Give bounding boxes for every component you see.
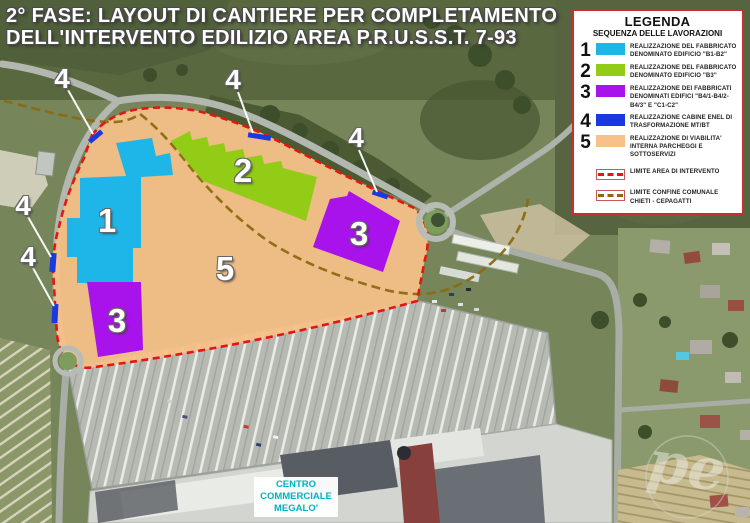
title-line-2: DELL'INTERVENTO EDILIZIO AREA P.R.U.S.S.…	[6, 27, 557, 49]
legend-item-label: REALIZZAZIONE DEL FABBRICATO DENOMINATO …	[630, 42, 737, 59]
mall-label: CENTRO COMMERCIALE MEGALO'	[254, 477, 338, 517]
legend-red-dash-swatch	[596, 169, 625, 180]
legend-item-4: 4 REALIZZAZIONE CABINE ENEL DI TRASFORMA…	[578, 113, 737, 131]
cabin-marker-4: 4	[15, 190, 31, 222]
roundabout-east	[419, 205, 453, 239]
legend-line-intervento: LIMITE AREA DI INTERVENTO	[578, 167, 737, 180]
legend-item-number: 1	[578, 42, 593, 60]
legend-item-label: REALIZZAZIONE DEL FABBRICATO DENOMINATO …	[630, 63, 737, 80]
legend-swatch-viabilita	[596, 135, 625, 147]
legend-item-number: 3	[578, 84, 593, 102]
cabin-marker-3: 4	[348, 122, 364, 154]
legend-swatch-b4-c1-c2	[596, 85, 625, 97]
terraced-slope	[0, 338, 52, 523]
cabin-marker-5: 4	[20, 241, 36, 273]
zone-label-2: 2	[234, 152, 252, 190]
site-plan-screenshot: 2° FASE: LAYOUT DI CANTIERE PER COMPLETA…	[0, 0, 750, 523]
legend-item-label: REALIZZAZIONE DEI FABBRICATI DENOMINATI …	[630, 84, 737, 110]
legend-swatch-b1-b2	[596, 43, 625, 55]
legend-item-label: REALIZZAZIONE CABINE ENEL DI TRASFORMAZI…	[630, 113, 737, 130]
legend-title: LEGENDA	[578, 14, 737, 29]
legend-item-number: 4	[578, 113, 593, 131]
legend-line-label: LIMITE AREA DI INTERVENTO	[630, 167, 737, 176]
legend-item-number: 2	[578, 63, 593, 81]
legend-item-label: REALIZZAZIONE DI VIABILITA' INTERNA PARC…	[630, 134, 737, 160]
legend-line-label: LIMITE CONFINE COMUNALE CHIETI - CEPAGAT…	[630, 188, 737, 205]
zone-label-3-east: 3	[350, 215, 368, 253]
legend-panel: LEGENDA SEQUENZA DELLE LAVORAZIONI 1 REA…	[572, 9, 744, 215]
legend-item-number: 5	[578, 134, 593, 152]
title-line-1: 2° FASE: LAYOUT DI CANTIERE PER COMPLETA…	[6, 5, 557, 27]
legend-item-3: 3 REALIZZAZIONE DEI FABBRICATI DENOMINAT…	[578, 84, 737, 110]
legend-subtitle: SEQUENZA DELLE LAVORAZIONI	[578, 29, 737, 38]
zone-label-1: 1	[98, 202, 116, 240]
cabin-marker-2: 4	[225, 64, 241, 96]
enel-cabin-5	[51, 304, 58, 323]
legend-item-2: 2 REALIZZAZIONE DEL FABBRICATO DENOMINAT…	[578, 63, 737, 81]
cabin-marker-1: 4	[54, 63, 70, 95]
legend-item-1: 1 REALIZZAZIONE DEL FABBRICATO DENOMINAT…	[578, 42, 737, 60]
zone-label-3-west: 3	[108, 302, 126, 340]
legend-swatch-b3	[596, 64, 625, 76]
legend-item-5: 5 REALIZZAZIONE DI VIABILITA' INTERNA PA…	[578, 134, 737, 160]
legend-swatch-enel	[596, 114, 625, 126]
page-title: 2° FASE: LAYOUT DI CANTIERE PER COMPLETA…	[6, 5, 557, 49]
swimming-pool	[676, 352, 689, 360]
legend-line-confine: LIMITE CONFINE COMUNALE CHIETI - CEPAGAT…	[578, 188, 737, 205]
zone-label-5: 5	[216, 250, 234, 288]
legend-brown-dash-swatch	[596, 190, 625, 201]
